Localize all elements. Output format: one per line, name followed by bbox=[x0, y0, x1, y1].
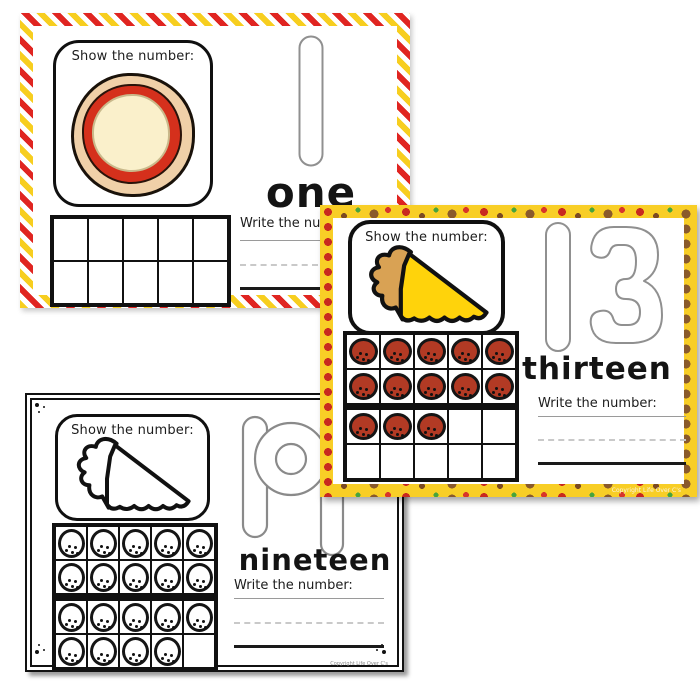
pepperoni-counter bbox=[451, 373, 480, 400]
ten-frame-cell bbox=[448, 444, 482, 479]
ten-frame-cell bbox=[414, 444, 448, 479]
ten-frame-cell bbox=[380, 409, 414, 444]
ten-frame-cell bbox=[55, 634, 87, 668]
copyright-text: Copyright Life Over C's bbox=[612, 487, 681, 494]
number-word: nineteen bbox=[205, 543, 425, 577]
ten-frame-cell bbox=[158, 218, 193, 261]
pepperoni-counter bbox=[122, 529, 149, 558]
ten-frame-cell bbox=[87, 560, 119, 594]
pepperoni-counter bbox=[154, 637, 181, 666]
ten-frame-cell bbox=[87, 526, 119, 560]
ten-frame-cell bbox=[158, 261, 193, 304]
ten-frame-cell bbox=[53, 218, 88, 261]
show-the-number-label: Show the number: bbox=[56, 49, 210, 64]
pepperoni-counter bbox=[451, 338, 480, 365]
corner-ornament bbox=[35, 403, 39, 407]
ten-frame-cell bbox=[119, 634, 151, 668]
pepperoni-counter bbox=[154, 563, 181, 592]
ten-frame-cell bbox=[88, 261, 123, 304]
ten-frame-cell bbox=[414, 409, 448, 444]
pizza-cheese-layer bbox=[92, 94, 170, 172]
ten-frame-cell bbox=[183, 560, 215, 594]
ten-frame bbox=[52, 523, 218, 597]
ten-frame-cell bbox=[183, 526, 215, 560]
copyright-text: Copyright Life Over C's bbox=[330, 661, 388, 667]
writing-line-bold bbox=[234, 645, 384, 648]
ten-frame-cell bbox=[482, 369, 516, 404]
pepperoni-counter bbox=[186, 603, 213, 632]
ten-frame-cell bbox=[183, 600, 215, 634]
pepperoni-counter bbox=[417, 338, 446, 365]
writing-line-dashed bbox=[538, 439, 686, 441]
ten-frame-cell bbox=[119, 600, 151, 634]
number-word: thirteen bbox=[492, 351, 700, 387]
ten-frame-cell bbox=[151, 526, 183, 560]
pizza-sauce-layer bbox=[82, 84, 182, 184]
pizza-slice-illustration bbox=[356, 242, 496, 326]
ten-frame bbox=[343, 406, 519, 482]
ten-frame-cell bbox=[119, 560, 151, 594]
pepperoni-counter bbox=[90, 603, 117, 632]
pepperoni-counter bbox=[383, 373, 412, 400]
pepperoni-counter bbox=[122, 603, 149, 632]
pepperoni-counter bbox=[122, 637, 149, 666]
ten-frame-cell bbox=[346, 334, 380, 369]
ten-frame bbox=[52, 597, 218, 671]
pepperoni-counter bbox=[383, 413, 412, 440]
show-the-number-box: Show the number: bbox=[55, 414, 210, 521]
pepperoni-counter bbox=[154, 529, 181, 558]
pepperoni-counter bbox=[485, 338, 514, 365]
corner-ornament bbox=[382, 650, 386, 654]
writing-line-dashed bbox=[234, 622, 384, 624]
show-the-number-box: Show the number: bbox=[348, 220, 505, 335]
ten-frame-cell bbox=[414, 369, 448, 404]
pepperoni-counter bbox=[90, 637, 117, 666]
ten-frame-cell bbox=[87, 600, 119, 634]
pepperoni-counter bbox=[349, 373, 378, 400]
ten-frame bbox=[343, 331, 519, 407]
ten-frame-cell bbox=[380, 334, 414, 369]
pepperoni-counter bbox=[58, 529, 85, 558]
pepperoni-counter bbox=[90, 563, 117, 592]
ten-frame-cell bbox=[380, 369, 414, 404]
pepperoni-counter bbox=[58, 603, 85, 632]
show-the-number-box: Show the number: bbox=[53, 40, 213, 207]
ten-frame-cell bbox=[448, 334, 482, 369]
whole-pizza-illustration bbox=[71, 73, 195, 197]
ten-frame-cell bbox=[55, 526, 87, 560]
ten-frame-cell bbox=[482, 444, 516, 479]
writing-line-solid bbox=[234, 598, 384, 599]
ten-frame-cell bbox=[346, 369, 380, 404]
ten-frame-cell bbox=[482, 334, 516, 369]
ten-frame-cell bbox=[346, 444, 380, 479]
ten-frame-cell bbox=[380, 444, 414, 479]
ten-frame-cell bbox=[448, 369, 482, 404]
pepperoni-counter bbox=[186, 563, 213, 592]
ten-frame bbox=[50, 215, 231, 307]
pepperoni-counter bbox=[349, 413, 378, 440]
worksheets-preview: Show the number: one Write the number: S… bbox=[0, 0, 700, 700]
ten-frame-cell bbox=[151, 600, 183, 634]
ten-frame-cell bbox=[123, 261, 158, 304]
pizza-slice-outline-illustration bbox=[62, 434, 200, 514]
ten-frame-cell bbox=[193, 261, 228, 304]
pepperoni-counter bbox=[90, 529, 117, 558]
ten-frame-cell bbox=[88, 218, 123, 261]
write-the-number-label: Write the number: bbox=[234, 578, 353, 593]
ten-frame-cell bbox=[151, 634, 183, 668]
write-the-number-label: Write the number: bbox=[538, 396, 657, 411]
writing-line-bold bbox=[538, 462, 686, 465]
pepperoni-counter bbox=[417, 413, 446, 440]
pepperoni-counter bbox=[417, 373, 446, 400]
pepperoni-counter bbox=[154, 603, 181, 632]
ten-frame-cell bbox=[482, 409, 516, 444]
ten-frame-cell bbox=[151, 560, 183, 594]
writing-line-solid bbox=[538, 416, 686, 417]
numeral-outline-1 bbox=[298, 35, 324, 167]
pepperoni-counter bbox=[485, 373, 514, 400]
pepperoni-counter bbox=[383, 338, 412, 365]
pepperoni-counter bbox=[58, 637, 85, 666]
pepperoni-counter bbox=[186, 529, 213, 558]
ten-frame-cell bbox=[193, 218, 228, 261]
ten-frame-cell bbox=[53, 261, 88, 304]
ten-frame-cell bbox=[123, 218, 158, 261]
pepperoni-counter bbox=[58, 563, 85, 592]
ten-frame-cell bbox=[346, 409, 380, 444]
worksheet-card-thirteen: Show the number: thirteen Write the numb… bbox=[320, 205, 697, 497]
ten-frame-cell bbox=[414, 334, 448, 369]
ten-frame-cell bbox=[448, 409, 482, 444]
ten-frame-cell bbox=[55, 600, 87, 634]
ten-frame-cell bbox=[119, 526, 151, 560]
ten-frame-cell bbox=[55, 560, 87, 594]
numeral-outline-13 bbox=[542, 219, 672, 355]
ten-frame-cell bbox=[183, 634, 215, 668]
ten-frame-cell bbox=[87, 634, 119, 668]
corner-ornament bbox=[35, 650, 39, 654]
pepperoni-counter bbox=[349, 338, 378, 365]
pepperoni-counter bbox=[122, 563, 149, 592]
